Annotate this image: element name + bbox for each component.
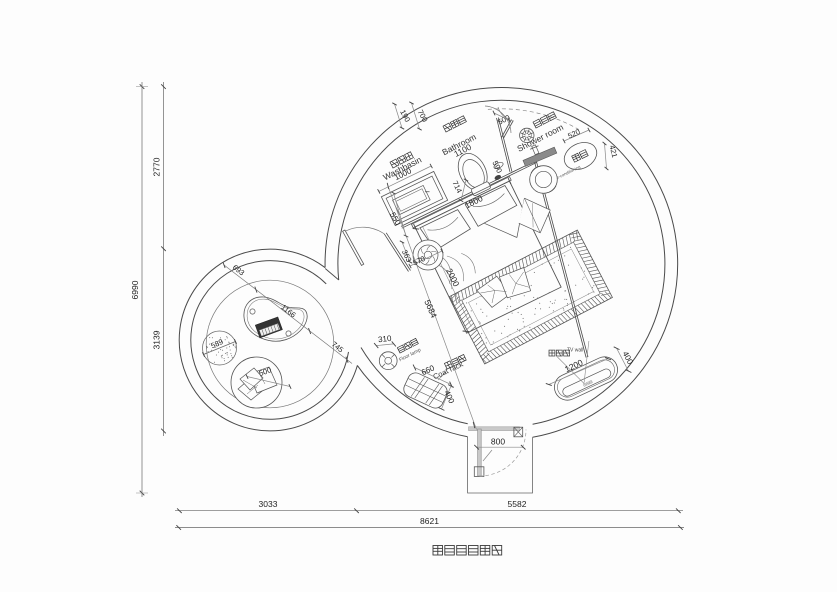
svg-text:2770: 2770 [152, 157, 162, 176]
svg-text:800: 800 [491, 437, 505, 447]
svg-text:3139: 3139 [152, 330, 162, 349]
svg-text:8621: 8621 [420, 516, 439, 526]
svg-text:3033: 3033 [259, 499, 278, 509]
svg-text:310: 310 [378, 334, 393, 344]
svg-text:5582: 5582 [508, 499, 527, 509]
svg-text:TV wall: TV wall [567, 348, 583, 354]
svg-text:6990: 6990 [130, 280, 140, 299]
